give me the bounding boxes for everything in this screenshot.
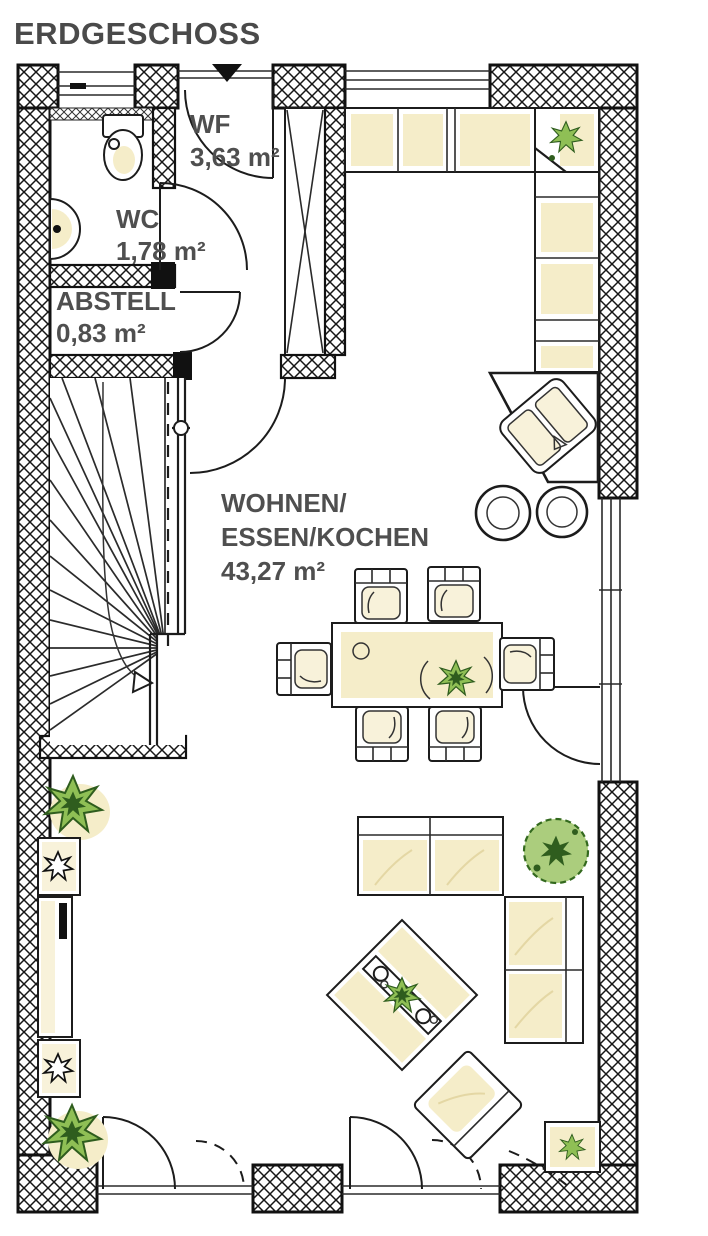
cabinet-with-plant — [38, 1040, 80, 1097]
wc-label: WC — [116, 204, 160, 234]
kitchen-corner-cabinet — [535, 108, 599, 172]
abstell-door — [180, 292, 240, 352]
dining-chair — [500, 638, 554, 690]
wohnen-area: 43,27 m² — [221, 556, 325, 586]
wf-area: 3,63 m² — [190, 142, 280, 172]
floorplan-drawing: ERDGESCHOSS — [0, 0, 708, 1236]
wc-area: 1,78 m² — [116, 236, 206, 266]
round-plant — [524, 819, 588, 883]
winder-staircase — [50, 378, 190, 745]
dining-chair — [356, 707, 408, 761]
dining-chair — [355, 569, 407, 623]
shaft-cross — [281, 108, 345, 378]
dining-chair — [428, 567, 480, 621]
wf-label: WF — [190, 109, 230, 139]
plant — [45, 776, 110, 840]
stair-newel-post — [174, 421, 188, 435]
wohnen-label-line1: WOHNEN/ — [221, 488, 347, 518]
abstell-label: ABSTELL — [56, 286, 176, 316]
room-label-abstell: ABSTELL 0,83 m² — [56, 286, 176, 348]
coffee-table — [327, 920, 477, 1070]
dining-chair — [429, 707, 481, 761]
kitchen-sink — [490, 373, 600, 482]
window-top-kitchen — [345, 71, 490, 89]
hall-door — [190, 378, 285, 473]
washbasin-icon — [50, 199, 80, 259]
dining-table — [332, 623, 502, 707]
toilet-icon — [103, 115, 143, 180]
bar-stools — [476, 486, 587, 540]
window-top-left — [58, 72, 135, 95]
terrace-door-bottom-left — [103, 1117, 244, 1189]
dining-chair — [277, 643, 331, 695]
sofa-two-seat-top — [358, 817, 503, 895]
floorplan-page: ERDGESCHOSS — [0, 0, 708, 1236]
armchair — [413, 1050, 523, 1160]
abstell-area: 0,83 m² — [56, 318, 146, 348]
kitchen-counter-top-row — [345, 108, 535, 172]
sofa-two-seat-right — [505, 897, 583, 1043]
cabinet-with-plant — [38, 838, 80, 895]
tv-icon — [59, 903, 67, 939]
window-right — [599, 498, 622, 782]
wohnen-label-line2: ESSEN/KOCHEN — [221, 522, 429, 552]
terrace-door-right — [523, 687, 600, 764]
corner-cabinet-plant — [545, 1122, 600, 1172]
room-label-wf: WF 3,63 m² — [190, 109, 280, 172]
entrance-arrow-icon — [212, 64, 242, 82]
tv-sideboard — [38, 897, 72, 1037]
page-title: ERDGESCHOSS — [14, 16, 261, 51]
kitchen-counter-right-column — [535, 172, 599, 372]
